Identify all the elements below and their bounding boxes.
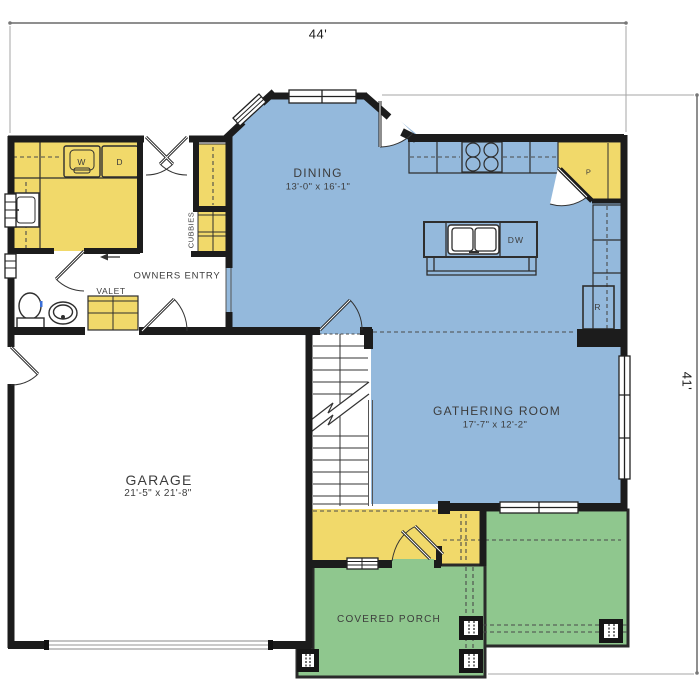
porch-post xyxy=(297,649,319,672)
left-wall-window-2 xyxy=(5,254,16,278)
porch-post xyxy=(459,649,483,673)
toilet-bowl xyxy=(19,293,41,319)
porch-lower xyxy=(297,565,485,677)
entry-threshold xyxy=(392,559,434,567)
entry-arrow xyxy=(100,254,120,261)
powder-room-fixtures xyxy=(17,293,77,330)
staircase xyxy=(311,334,373,506)
floor-plan-drawing xyxy=(0,0,700,700)
garage-door xyxy=(44,640,273,650)
floor-plan-canvas: 44' 41' DINING 13'-0" x 16'-1" GATHERING… xyxy=(0,0,700,700)
porch-post xyxy=(599,619,623,643)
porch-post xyxy=(459,616,483,640)
foyer-floor xyxy=(311,509,481,565)
